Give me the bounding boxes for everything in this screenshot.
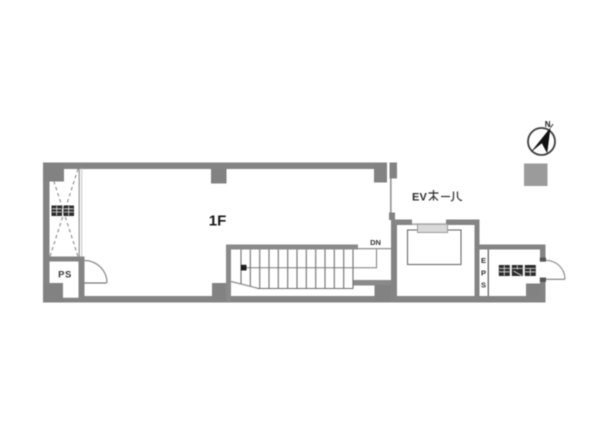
svg-text:N: N — [545, 120, 551, 129]
svg-text:DN: DN — [370, 238, 381, 247]
svg-text:EV: EV — [412, 192, 428, 204]
svg-text:P: P — [481, 269, 486, 278]
svg-text:E: E — [481, 256, 486, 265]
svg-text:S: S — [481, 281, 486, 290]
svg-text:PS: PS — [58, 270, 72, 281]
svg-text:1F: 1F — [209, 213, 227, 230]
